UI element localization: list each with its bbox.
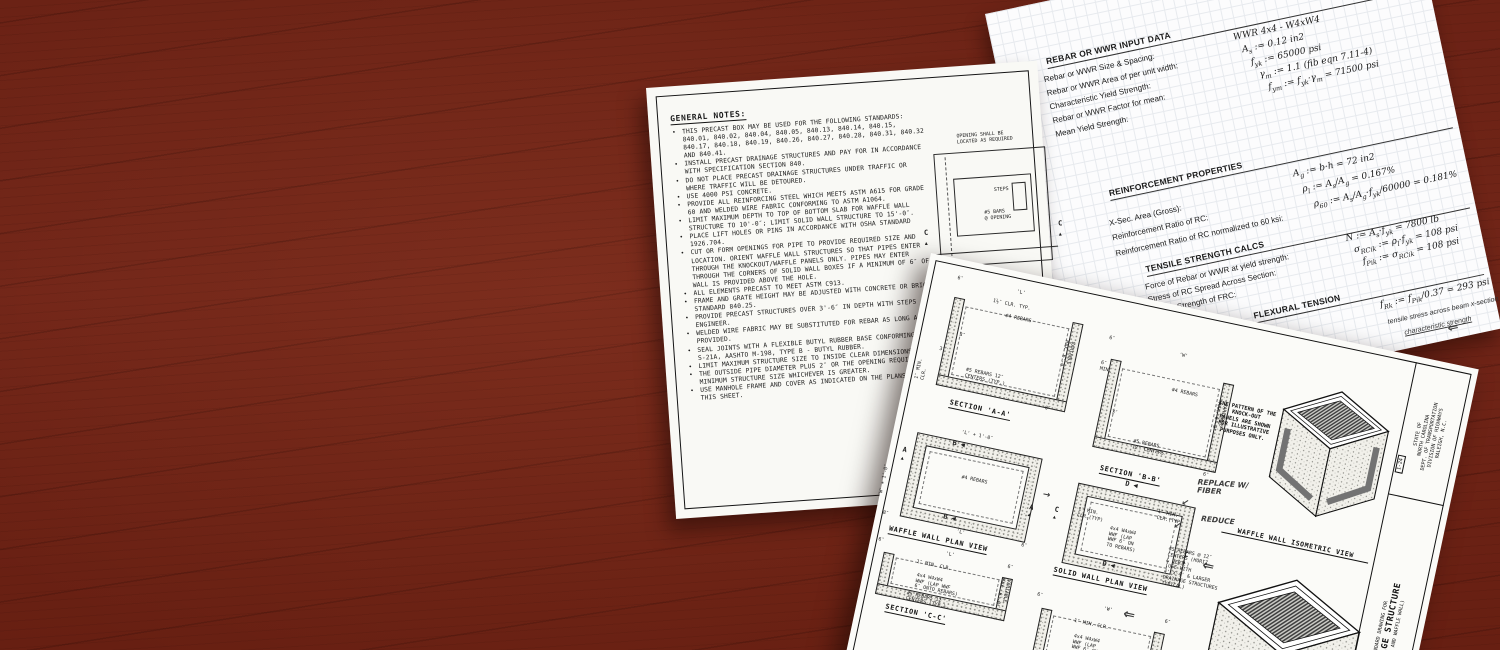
drawing-annotation: #5 BARS @ OPENING [984, 209, 1011, 222]
inset-steps-box [1011, 182, 1027, 211]
handwritten-annotation: ⇐ [1122, 607, 1137, 625]
drawing-annotation: OPENING SHALL BE LOCATED AS REQUIRED [956, 131, 1013, 146]
drawing-annotation: C [1058, 221, 1063, 227]
notes-title: GENERAL NOTES: [670, 109, 746, 125]
drawing-annotation: C [924, 230, 929, 236]
drawing-annotation: ▲ [1059, 233, 1062, 239]
handwritten-annotation: ↙ [1173, 521, 1182, 532]
handwritten-annotation: ↙ [1180, 499, 1189, 510]
handwritten-annotation: REDUCE [1201, 515, 1236, 527]
desk-scene: REBAR OR WWR INPUT DATA Rebar or WWR Siz… [0, 0, 1500, 650]
handwritten-annotation: → [1042, 491, 1051, 502]
handwritten-annotation: ⇐ [1447, 321, 1461, 337]
handwritten-annotation: ⇐ [1201, 558, 1216, 576]
drawing-annotation: STEPS [994, 187, 1009, 194]
drawing-annotation: ▲ [925, 242, 928, 248]
handwritten-annotation: REPLACE W/ FIBER [1197, 478, 1249, 498]
